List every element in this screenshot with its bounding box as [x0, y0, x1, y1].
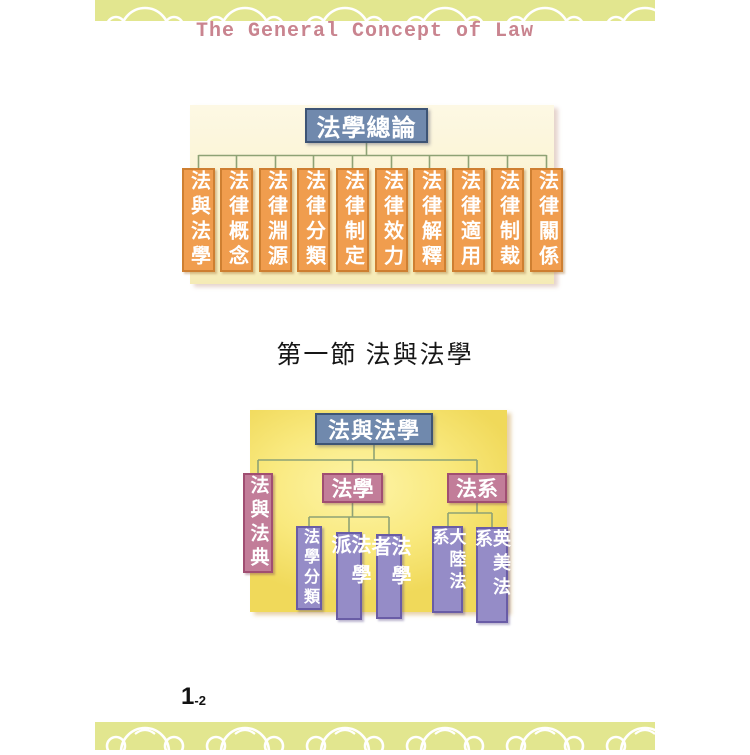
d1-child-box: 法與法學 [182, 168, 215, 272]
d2-branch-box: 法與法典 [243, 473, 273, 573]
d1-child-box: 法律解釋 [413, 168, 446, 272]
book-page: { "header": { "title": "The General Conc… [0, 0, 750, 750]
page-number: 1-2 [181, 686, 206, 708]
d1-child-box: 法律制定 [336, 168, 369, 272]
page-number-minor: -2 [194, 693, 206, 708]
d2-leaf-box: 大陸法系 [432, 526, 463, 613]
d1-child-box: 法律概念 [220, 168, 253, 272]
section-heading: 第一節 法與法學 [0, 335, 750, 371]
d2-leaf-box: 法學派 [336, 532, 362, 620]
d1-child-box: 法律效力 [375, 168, 408, 272]
d1-child-box: 法律適用 [452, 168, 485, 272]
d1-root-box: 法學總論 [305, 108, 428, 143]
d2-branch-box: 法學 [322, 473, 383, 503]
d1-child-box: 法律制裁 [491, 168, 524, 272]
d2-branch-box: 法系 [447, 473, 507, 503]
d2-leaf-box: 英美法系 [476, 527, 508, 623]
d1-root-label: 法學總論 [317, 108, 417, 143]
d1-child-box: 法律淵源 [259, 168, 292, 272]
d2-root-box: 法與法學 [315, 413, 433, 445]
d2-root-label: 法與法學 [328, 413, 420, 445]
d2-leaf-box: 法學分類 [296, 526, 322, 610]
d2-leaf-box: 法學者 [376, 534, 402, 619]
d1-child-box: 法律關係 [530, 168, 563, 272]
page-number-major: 1 [181, 686, 194, 708]
d1-child-box: 法律分類 [297, 168, 330, 272]
